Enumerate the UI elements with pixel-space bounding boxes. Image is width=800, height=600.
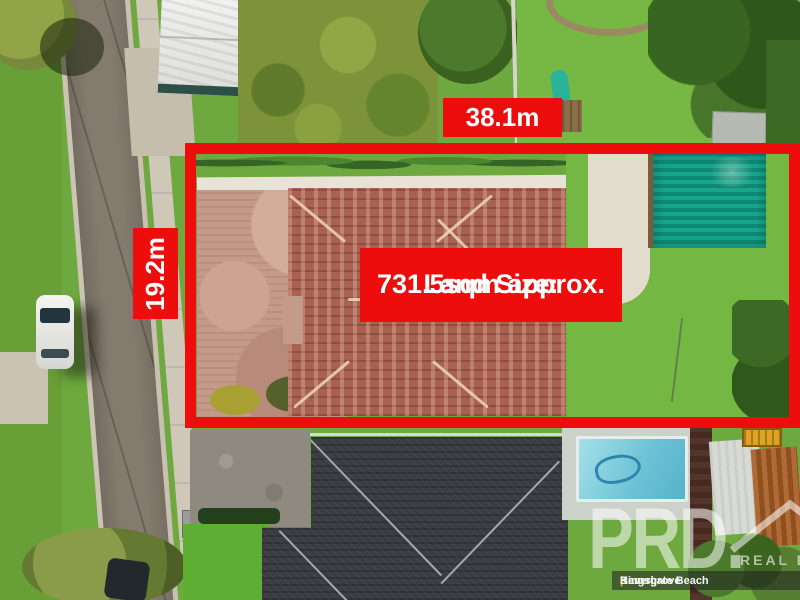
frontage-dimension-label: 38.1m bbox=[443, 98, 562, 137]
parked-car-dark bbox=[103, 557, 150, 600]
overgrown-garden bbox=[238, 0, 438, 150]
roof-valley bbox=[440, 461, 560, 585]
land-size-callout: Land Size: 731.5sqm approx. bbox=[360, 248, 622, 322]
low-hedge bbox=[198, 508, 280, 524]
frontage-dimension-text: 38.1m bbox=[466, 103, 540, 133]
agency-offices-bar: Ramsgate Beach | Kingsgrove | Beverl bbox=[612, 571, 800, 590]
agency-tagline: REAL ES bbox=[740, 552, 800, 568]
pool-hose bbox=[593, 451, 644, 488]
depth-dimension-label: 19.2m bbox=[133, 228, 178, 319]
roof-gutter bbox=[310, 433, 566, 436]
toy-truck bbox=[742, 428, 782, 447]
aerial-photo: 38.1m 19.2m Land Size: 731.5sqm approx. … bbox=[0, 0, 800, 600]
tree-shadow bbox=[40, 18, 104, 76]
neighbor-lawn bbox=[183, 524, 269, 600]
roof-valley bbox=[279, 530, 364, 600]
office-name: Beverl bbox=[620, 575, 654, 587]
agency-roof-icon bbox=[728, 494, 800, 554]
parked-car bbox=[36, 295, 74, 369]
depth-dimension-text: 19.2m bbox=[141, 237, 171, 311]
land-size-line2: 731.5sqm approx. bbox=[377, 269, 605, 300]
agency-logo: PRD. bbox=[588, 496, 743, 582]
roof-valley bbox=[309, 438, 442, 576]
